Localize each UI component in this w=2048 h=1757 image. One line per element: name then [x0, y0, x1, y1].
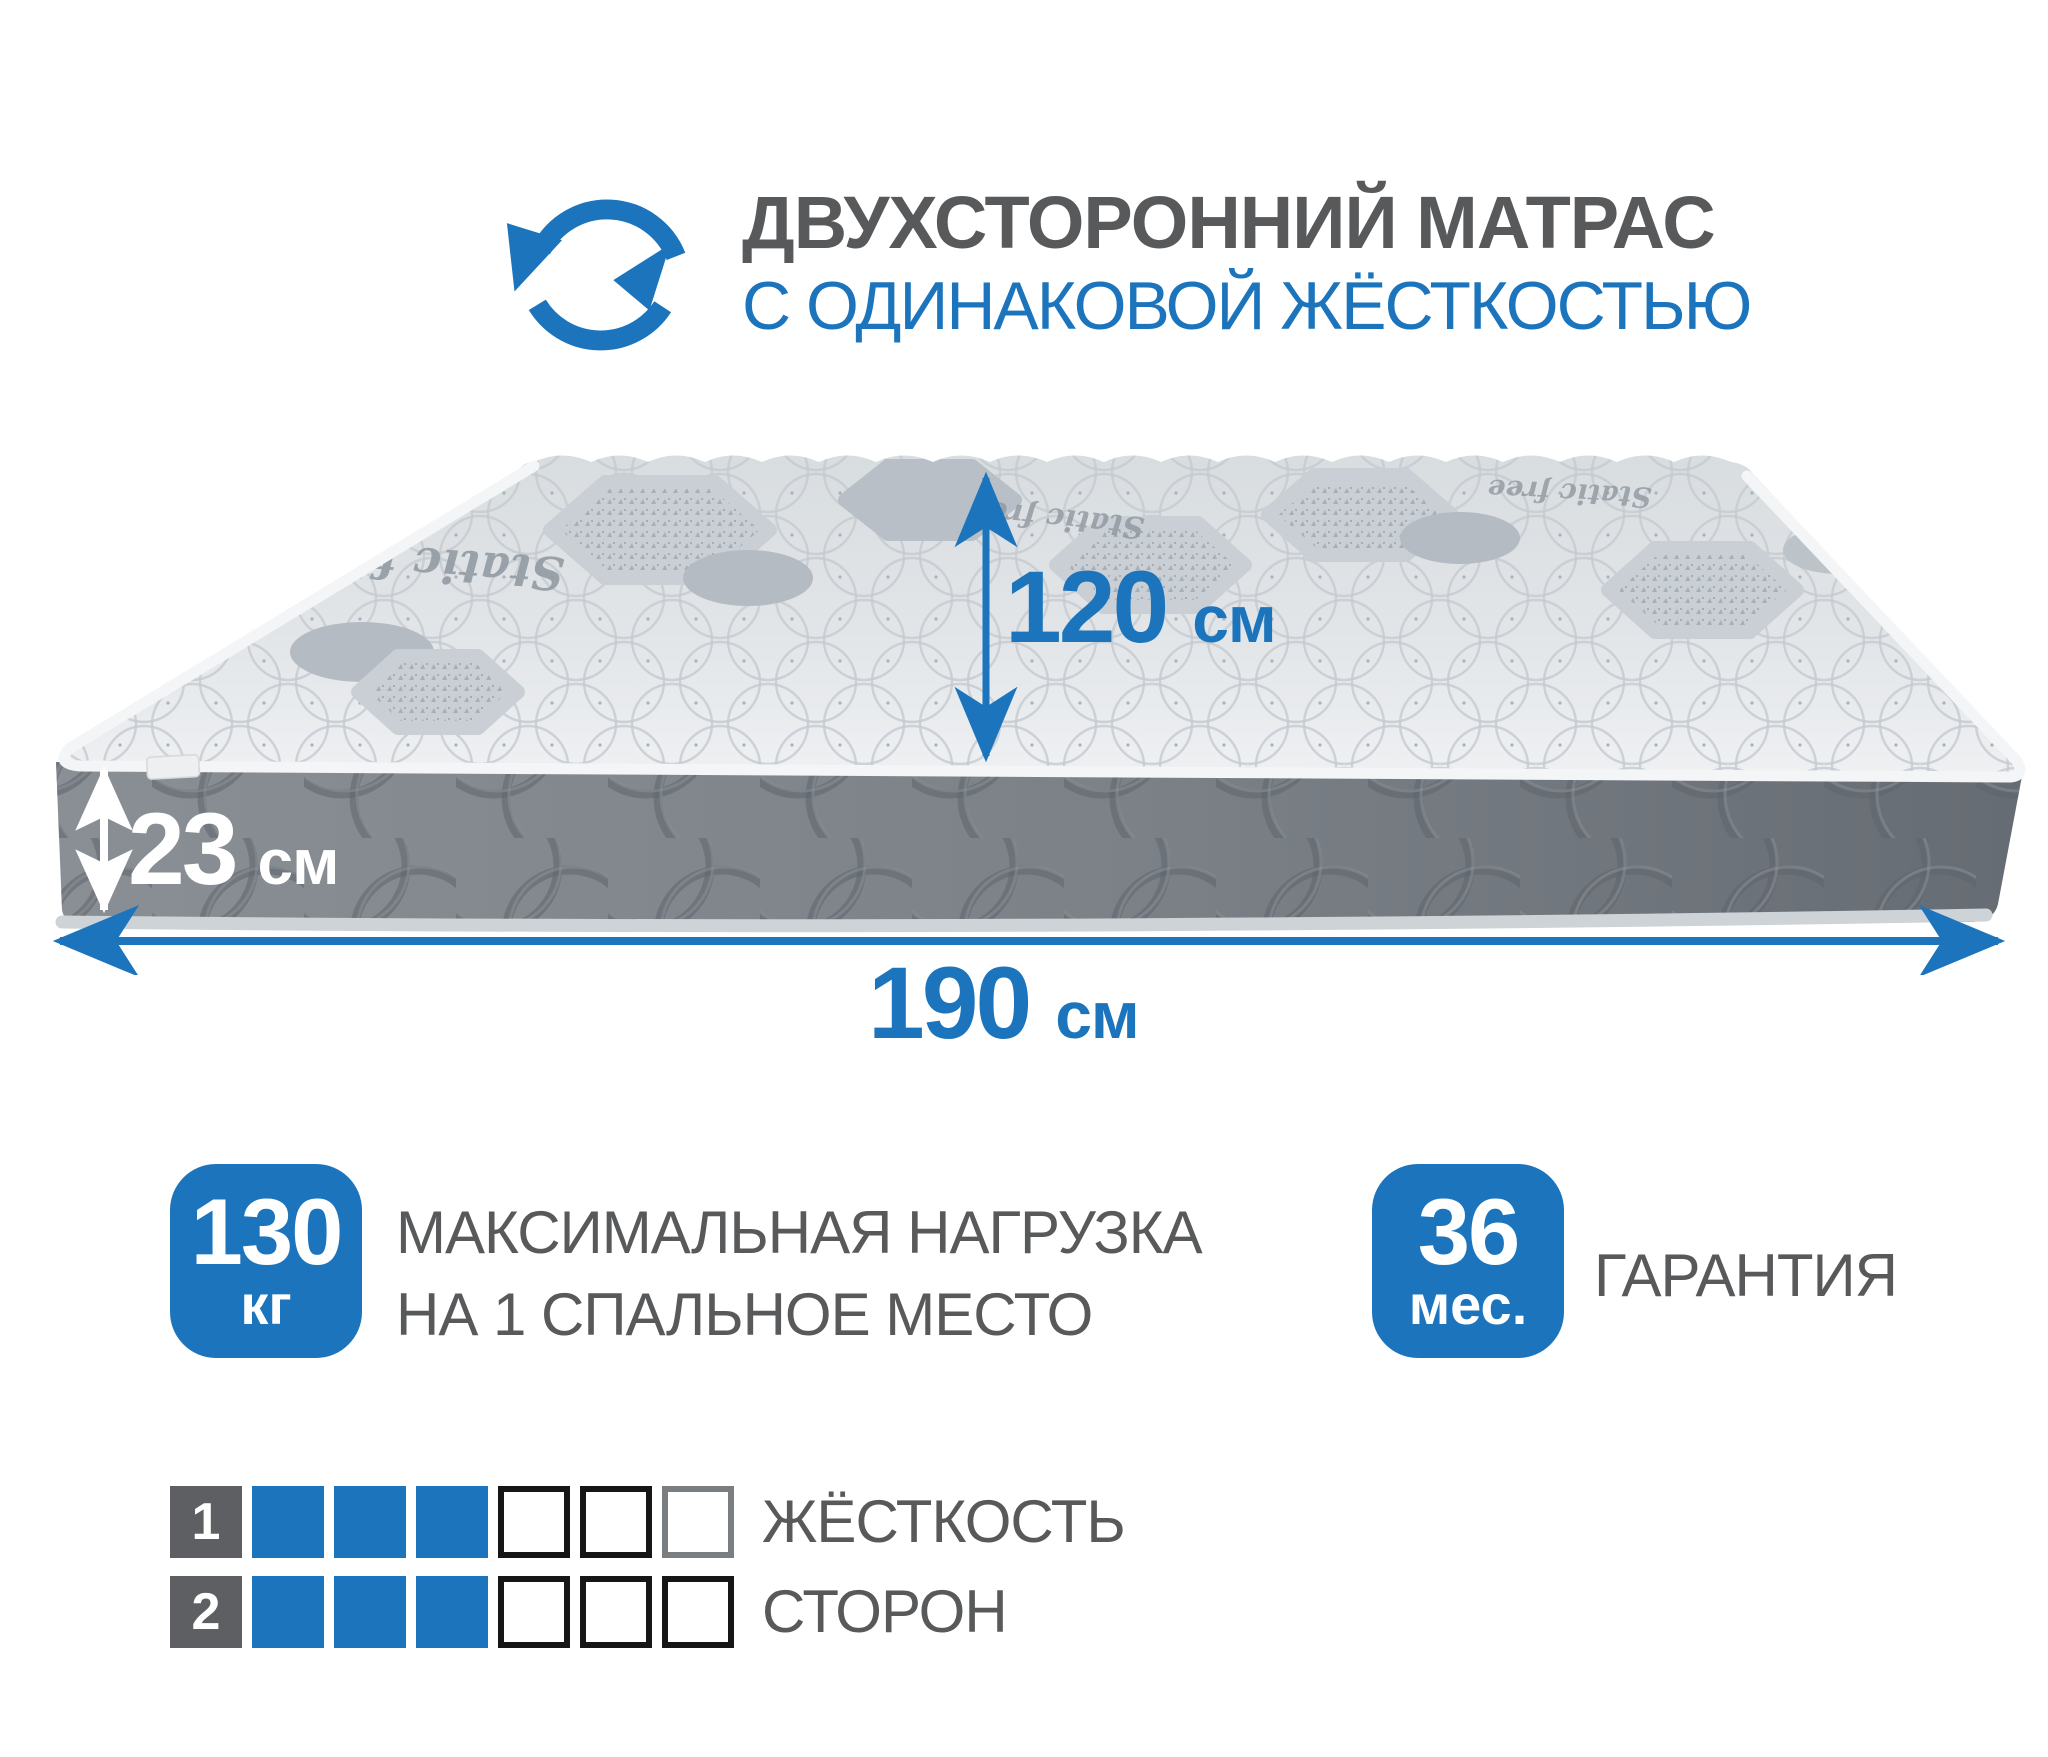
firmness-row-side1: 1 [170, 1486, 734, 1558]
warranty-value: 36 [1418, 1189, 1519, 1275]
firmness-title-line2: СТОРОН [762, 1582, 1007, 1642]
width-unit: см [1192, 586, 1276, 652]
warranty-label: ГАРАНТИЯ [1594, 1246, 1897, 1306]
mattress-side-face [56, 762, 2022, 929]
firmness-row-side2: 2 [170, 1576, 734, 1648]
warranty-unit: мес. [1409, 1277, 1528, 1333]
firmness-title-line1: ЖЁСТКОСТЬ [762, 1492, 1125, 1552]
firmness-cell-filled [252, 1576, 324, 1648]
max-load-description: МАКСИМАЛЬНАЯ НАГРУЗКА НА 1 СПАЛЬНОЕ МЕСТ… [396, 1192, 1202, 1355]
firmness-cell-empty [498, 1576, 570, 1648]
page-subtitle: С ОДИНАКОВОЙ ЖЁСТКОСТЬЮ [742, 272, 1750, 340]
width-dimension-label: 120 см [1005, 556, 1276, 658]
rotate-arrows-icon [505, 178, 695, 388]
rotate-arrows-svg [505, 178, 695, 388]
max-load-unit: кг [240, 1277, 291, 1333]
max-load-description-line1: МАКСИМАЛЬНАЯ НАГРУЗКА [396, 1192, 1202, 1274]
firmness-cell-empty [580, 1486, 652, 1558]
max-load-badge: 130 кг [170, 1164, 362, 1358]
firmness-scale: 1 2 [170, 1486, 734, 1666]
mattress-tag [147, 755, 200, 780]
firmness-cell-empty [580, 1576, 652, 1648]
firmness-cell-filled [334, 1576, 406, 1648]
thickness-dimension-label: 23 см [128, 798, 338, 900]
thickness-unit: см [257, 830, 338, 894]
length-dimension-label: 190 см [868, 952, 1139, 1054]
length-value: 190 [868, 952, 1029, 1054]
thickness-value: 23 [128, 798, 235, 900]
page-title: ДВУХСТОРОННИЙ МАТРАС [742, 186, 1715, 260]
warranty-badge: 36 мес. [1372, 1164, 1564, 1358]
firmness-cell-filled [416, 1576, 488, 1648]
firmness-cell-filled [252, 1486, 324, 1558]
firmness-side1-number: 1 [170, 1486, 242, 1558]
firmness-side2-number: 2 [170, 1576, 242, 1648]
firmness-cell-filled [334, 1486, 406, 1558]
firmness-cell-empty [662, 1576, 734, 1648]
length-unit: см [1055, 982, 1139, 1048]
max-load-description-line2: НА 1 СПАЛЬНОЕ МЕСТО [396, 1274, 1202, 1356]
firmness-cell-empty [662, 1486, 734, 1558]
width-value: 120 [1005, 556, 1166, 658]
max-load-value: 130 [191, 1189, 342, 1275]
firmness-cell-empty [498, 1486, 570, 1558]
firmness-cell-filled [416, 1486, 488, 1558]
